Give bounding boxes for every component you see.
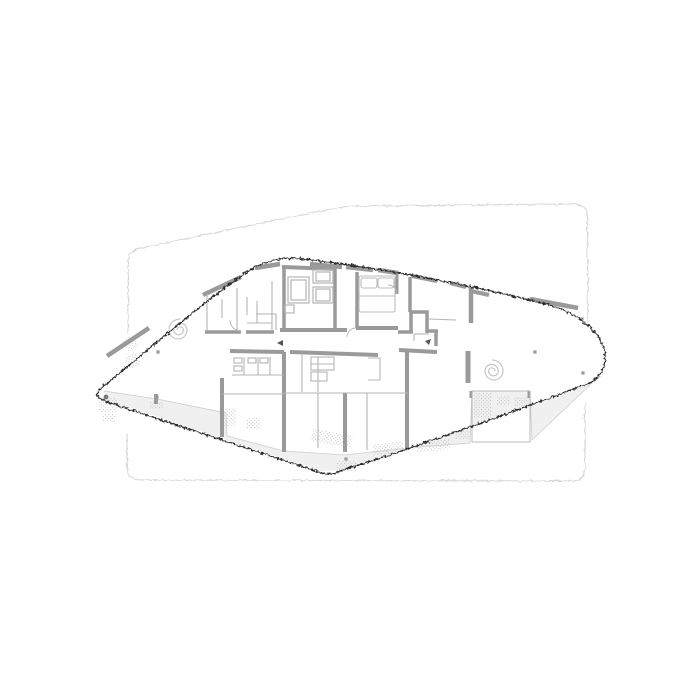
floor-plan-canvas [0,0,700,700]
stipple-cluster [247,418,260,429]
column [344,457,347,460]
column-dark [104,395,109,400]
column [156,350,159,353]
stipple-cluster [497,396,510,405]
stipple-cluster [474,393,491,418]
stipple-cluster [514,397,528,406]
wall-segment [230,351,284,352]
column [533,350,536,353]
wall-segment [399,350,437,352]
floor-plan-drawing [0,0,700,700]
column [581,371,584,374]
core-wall [282,267,336,269]
stipple-cluster [103,414,115,422]
column [155,395,158,398]
